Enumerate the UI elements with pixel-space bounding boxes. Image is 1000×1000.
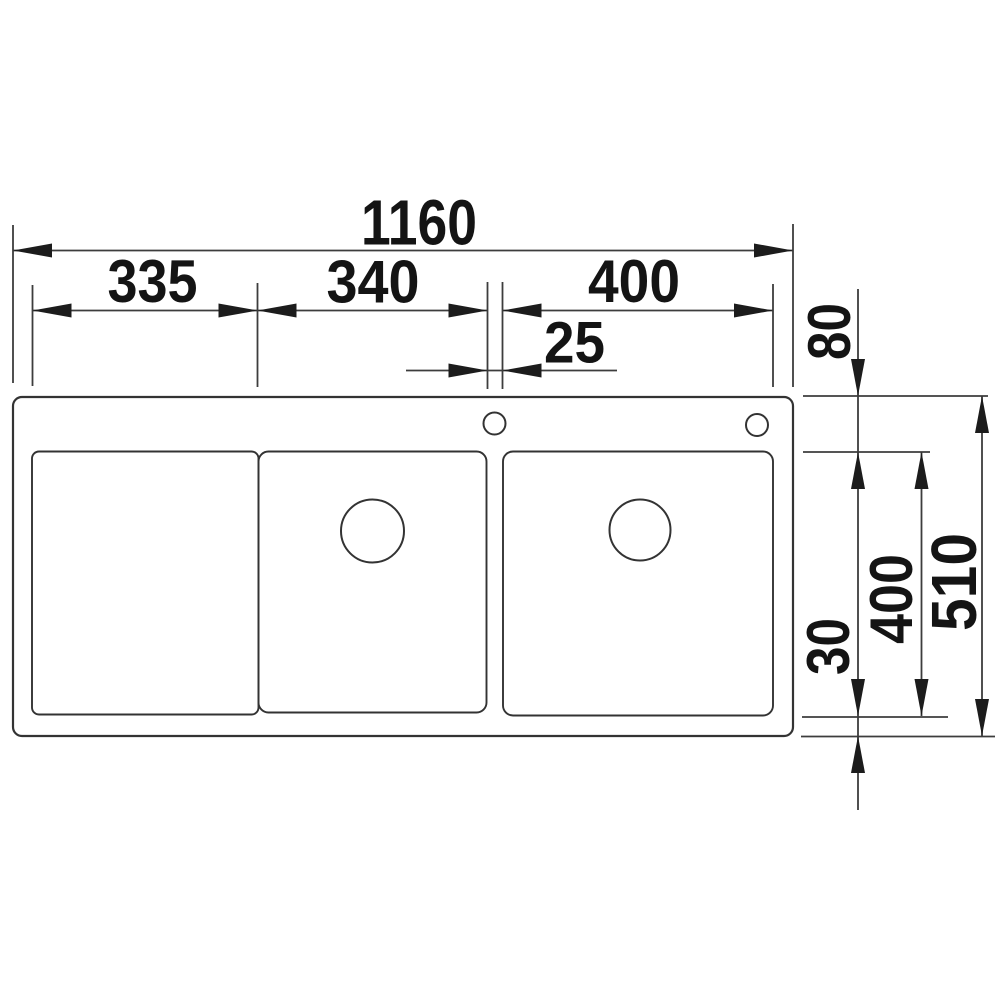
- svg-text:25: 25: [544, 311, 605, 376]
- svg-text:335: 335: [108, 248, 198, 315]
- svg-text:340: 340: [327, 249, 420, 316]
- svg-text:30: 30: [795, 618, 862, 675]
- svg-text:80: 80: [796, 303, 863, 360]
- svg-text:400: 400: [858, 554, 925, 644]
- svg-text:510: 510: [918, 533, 990, 631]
- svg-text:400: 400: [588, 248, 680, 315]
